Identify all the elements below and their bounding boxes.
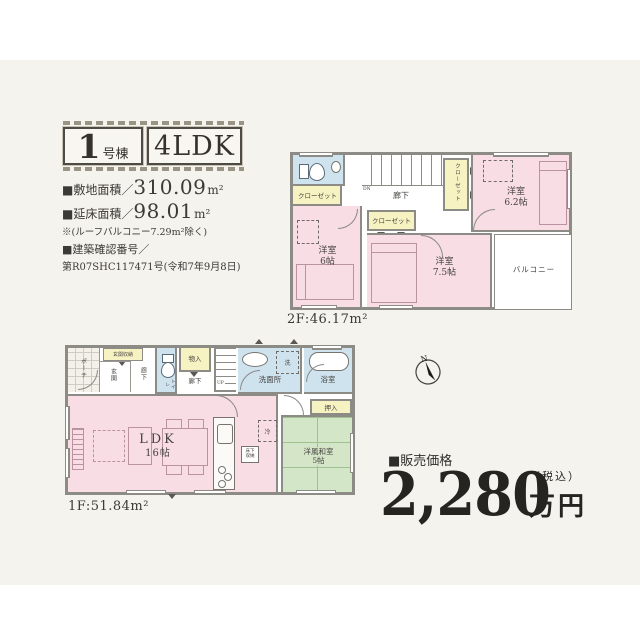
floorplan-1f: ポーチ 玄関収納 玄関 廊下 トイレ 物入 廊下 UP [65, 345, 355, 495]
stairs-2f [362, 155, 443, 186]
price-unit-block: （税込） 万円 [529, 468, 587, 523]
bedroom-75j-name: 洋室 [397, 257, 492, 268]
chair-outline [166, 419, 182, 429]
washitsu-size: 5帖 [283, 456, 354, 465]
window [312, 345, 342, 350]
shoe-storage-label: 玄関収納 [104, 352, 142, 358]
price-amount: 2,280 [380, 462, 550, 528]
kitchen-sink-icon [217, 424, 233, 444]
balcony: バルコニー [494, 234, 572, 310]
entrance-label: 玄関 [109, 368, 117, 382]
underfloor-storage-text: 床下収納 [244, 449, 256, 460]
roof-balcony-note: ※(ルーフバルコニー7.29m²除く) [62, 224, 241, 238]
vent-mark [168, 494, 176, 499]
bed-pillow-line [305, 265, 306, 299]
fridge-icon: 冷 [258, 420, 277, 442]
vent-mark [255, 339, 263, 344]
unit-number: 1 [78, 130, 101, 163]
window [126, 490, 166, 495]
decorative-strip-bottom [63, 167, 244, 171]
front-hall-label: 廊下 [139, 367, 147, 381]
storage-text: 物入 [181, 355, 209, 363]
storage-label: 物入 [181, 355, 209, 363]
entrance-text: 玄関 [109, 368, 117, 382]
small-sink-icon [331, 161, 341, 173]
layout-type: 4LDK [154, 131, 235, 162]
window [299, 152, 333, 157]
washing-machine-text: 洗 [284, 358, 290, 367]
layout-plate: 4LDK [147, 127, 242, 165]
window [493, 152, 549, 157]
building-area-unit: m² [194, 207, 210, 221]
toilet-1f-label: トイレ [164, 377, 175, 392]
bedroom-62j-label: 洋室 6.2帖 [473, 187, 559, 210]
property-specs: ■敷地面積／ 310.09 m² ■延床面積／ 98.01 m² ※(ルーフバル… [62, 175, 241, 273]
toilet-bowl-icon [309, 163, 325, 181]
underfloor-storage: 床下収納 [241, 446, 259, 463]
site-area-unit: m² [207, 183, 223, 197]
shoe-storage: 玄関収納 [103, 348, 143, 361]
desk-outline [483, 160, 513, 182]
toilet-1f: トイレ [155, 348, 177, 394]
oshiire-closet: 押入 [310, 399, 352, 415]
door-arc [284, 395, 304, 415]
closet-2f-mid-label: クローゼット [369, 217, 414, 225]
front-hall-text: 廊下 [139, 367, 147, 381]
closet-2f-left: クローゼット [293, 186, 342, 206]
plate-row: 1 号棟 4LDK [63, 127, 244, 165]
hallway-2f-label: 廊下 [381, 191, 421, 201]
window [194, 490, 226, 495]
permit-number: 第R07SHC117471号(令和7年9月8日) [62, 258, 241, 273]
unit-number-plate: 1 号棟 [63, 127, 143, 165]
ldk: LDK 16帖 床下収納 冷 [68, 394, 278, 492]
desk-outline [297, 220, 319, 244]
bedroom-6j-size: 6帖 [293, 257, 362, 268]
washing-machine-icon: 洗 [276, 351, 299, 374]
bedroom-6j-name: 洋室 [293, 246, 362, 257]
ldk-name: LDK [98, 432, 218, 448]
compass-north: N [420, 354, 429, 364]
sink-icon [242, 352, 268, 367]
hallway-2f-text: 廊下 [381, 191, 421, 201]
area-2f-label: 2F:46.17m² [287, 312, 368, 327]
unit-suffix: 号棟 [102, 131, 128, 162]
closet-2f-left-text: クローゼット [293, 192, 342, 200]
chair-outline [166, 465, 182, 475]
building-area-label: ■延床面積／ [62, 205, 133, 222]
ldk-size: 16帖 [98, 448, 218, 461]
bed-outline [296, 264, 354, 300]
stove-burner-icon [218, 480, 226, 488]
front-hall: 廊下 [130, 361, 153, 392]
bedroom-62j-name: 洋室 [473, 187, 559, 198]
entrance: 玄関 [100, 361, 130, 392]
window [65, 406, 70, 440]
price-unit: 万円 [529, 486, 587, 523]
kitchen-counter [213, 417, 235, 490]
window [567, 169, 572, 209]
closet-2f-mid-text: クローゼット [369, 217, 414, 225]
washitsu-label: 洋風和室 5帖 [283, 447, 354, 466]
chair-outline [188, 419, 204, 429]
stairs-up-text: UP [217, 381, 224, 387]
compass: N [412, 353, 444, 391]
decorative-strip-top [63, 121, 244, 125]
balcony-label: バルコニー [495, 265, 573, 274]
stairs-dn-label: DN [363, 187, 371, 193]
bed-pillow-line [540, 170, 566, 171]
site-area-line: ■敷地面積／ 310.09 m² [62, 175, 241, 199]
balcony-text: バルコニー [495, 265, 573, 274]
closet-2f-right-label: クローゼット [453, 163, 460, 202]
window [379, 305, 413, 310]
tv-board-outline [72, 428, 84, 470]
closet-2f-right-text: クローゼット [453, 163, 460, 202]
oshiire-text: 押入 [312, 404, 350, 412]
bedroom-75j-size: 7.5帖 [397, 268, 492, 279]
vent-mark [290, 339, 298, 344]
bedroom-6j-label: 洋室 6帖 [293, 246, 362, 269]
washitsu: 洋風和室 5帖 [281, 415, 352, 492]
oshiire-label: 押入 [312, 404, 350, 412]
window [65, 448, 70, 478]
closet-2f-mid: クローゼット [367, 210, 416, 231]
stairs-dn-text: DN [363, 187, 371, 193]
bed-pillow-line [372, 252, 416, 253]
closet-2f-left-label: クローゼット [293, 192, 342, 200]
hallway-1f-text: 廊下 [180, 377, 210, 385]
toilet-1f-text: トイレ [164, 377, 175, 392]
hallway-1f-label: 廊下 [180, 377, 210, 385]
ldk-label: LDK 16帖 [98, 432, 218, 461]
building-area-value: 98.01 [133, 199, 193, 223]
window [301, 305, 337, 310]
toilet-2f [293, 155, 345, 186]
header-plate: 1 号棟 4LDK [63, 119, 244, 173]
building-area-line: ■延床面積／ 98.01 m² [62, 199, 241, 223]
permit-label: ■建築確認番号／ [62, 241, 241, 257]
bedroom-75j-label: 洋室 7.5帖 [397, 257, 492, 280]
stove-burner-icon [224, 473, 232, 481]
window [296, 490, 336, 495]
storage-monoire: 物入 [179, 348, 211, 372]
site-area-value: 310.09 [133, 175, 206, 199]
area-1f-label: 1F:51.84m² [68, 499, 149, 514]
stairs-up-label: UP [216, 381, 225, 387]
compass-icon: N [412, 353, 444, 387]
floorplan-2f: クローゼット 洋室 6帖 DN 廊下 クローゼット 洋室 7.5帖 [290, 152, 572, 310]
chair-outline [188, 465, 204, 475]
fridge-text: 冷 [264, 427, 270, 436]
toilet-bowl-icon [161, 362, 175, 378]
price-tax-note: （税込） [529, 468, 587, 484]
shoe-storage-text: 玄関収納 [104, 352, 142, 358]
washitsu-name: 洋風和室 [283, 447, 354, 456]
site-area-label: ■敷地面積／ [62, 181, 133, 198]
closet-2f-right: クローゼット [443, 158, 469, 211]
bedroom-62j-size: 6.2帖 [473, 198, 559, 209]
window [350, 433, 355, 473]
toilet-tank-icon [299, 164, 309, 179]
